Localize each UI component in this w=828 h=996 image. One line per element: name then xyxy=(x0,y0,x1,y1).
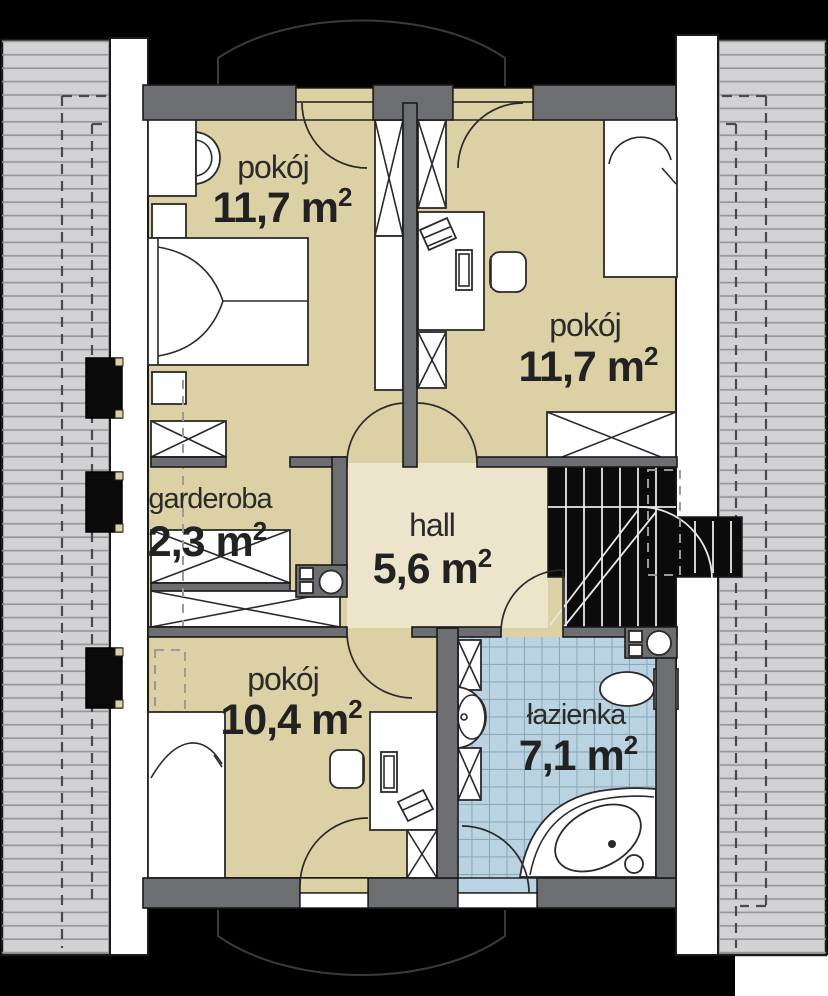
cabinet-icon xyxy=(458,748,481,800)
cabinet xyxy=(375,236,403,390)
wardrobe-icon xyxy=(547,412,676,463)
single-bed-icon xyxy=(604,118,677,277)
window-recess xyxy=(86,648,122,708)
roof-slope-right xyxy=(712,40,826,955)
room-name: garderoba xyxy=(148,483,273,515)
wardrobe-icon xyxy=(418,120,446,208)
wall-top-right xyxy=(533,85,676,120)
room-name: hall xyxy=(409,507,455,543)
washing-machine-icon xyxy=(625,627,677,658)
shelf xyxy=(151,583,290,591)
room-area: 2,3 m2 xyxy=(148,516,267,566)
room-name: pokój xyxy=(549,307,621,343)
room-area: 11,7 m2 xyxy=(519,341,659,391)
washing-machine-icon xyxy=(296,565,347,597)
wall-bottom-center xyxy=(368,878,458,908)
room-area: 7,1 m2 xyxy=(519,730,638,780)
wall-bottom-left xyxy=(143,878,300,908)
monitor-icon xyxy=(456,250,472,290)
room-area: 5,6 m2 xyxy=(373,543,492,593)
room-name: łazienka xyxy=(527,699,627,731)
room-name: pokój xyxy=(247,661,319,697)
wall-bathroom-right xyxy=(656,628,676,878)
wall-garderoba-top-left xyxy=(151,457,226,467)
wall-bathroom-left xyxy=(437,628,458,878)
wardrobe-icon xyxy=(375,120,403,236)
wall-divider xyxy=(403,103,417,467)
wall-garderoba-bottom xyxy=(148,627,347,637)
single-bed-icon xyxy=(148,712,225,878)
room-area: 10,4 m2 xyxy=(220,694,362,744)
cabinet xyxy=(148,118,196,196)
window-recess xyxy=(86,358,122,418)
nightstand xyxy=(152,372,186,404)
floor-plan-drawing: pokój 11,7 m2 pokój 11,7 m2 garderoba 2,… xyxy=(0,0,828,996)
cabinet-icon xyxy=(458,640,481,690)
desk xyxy=(370,712,437,830)
nightstand xyxy=(152,204,186,238)
room-area: 11,7 m2 xyxy=(213,182,353,232)
page-corner xyxy=(735,955,828,996)
wall-hall-left xyxy=(332,457,347,569)
window-recess xyxy=(86,472,122,532)
room-name: pokój xyxy=(237,149,309,185)
eaves-band-right xyxy=(676,35,718,955)
chair-icon xyxy=(490,252,526,292)
double-bed-icon xyxy=(148,238,308,365)
desk xyxy=(418,212,484,330)
wall-hall-top-right xyxy=(477,457,677,467)
wardrobe-icon xyxy=(418,332,446,388)
monitor-icon xyxy=(381,752,397,792)
wall-bottom-right xyxy=(537,878,676,908)
wardrobe-icon xyxy=(151,421,226,457)
wardrobe-icon xyxy=(407,830,437,878)
chair-icon xyxy=(330,750,364,788)
floor-plan-page: pokój 11,7 m2 pokój 11,7 m2 garderoba 2,… xyxy=(0,0,828,996)
wall-top-left xyxy=(143,85,296,120)
